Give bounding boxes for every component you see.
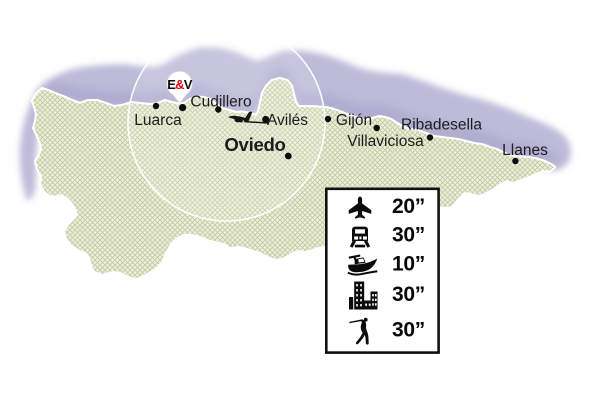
- svg-text:Ribadesella: Ribadesella: [401, 116, 482, 133]
- svg-text:30”: 30”: [392, 319, 425, 342]
- svg-text:Gijón: Gijón: [336, 112, 372, 129]
- svg-text:Oviedo: Oviedo: [224, 134, 285, 155]
- svg-text:Luarca: Luarca: [134, 112, 182, 129]
- svg-text:Villaviciosa: Villaviciosa: [347, 133, 424, 150]
- svg-text:20”: 20”: [392, 195, 425, 218]
- svg-text:Avilés: Avilés: [267, 112, 308, 129]
- svg-text:E&V: E&V: [167, 77, 192, 92]
- svg-text:10”: 10”: [392, 253, 425, 276]
- svg-text:Llanes: Llanes: [502, 142, 548, 159]
- svg-text:30”: 30”: [392, 283, 425, 306]
- svg-text:30”: 30”: [392, 224, 425, 247]
- svg-text:Cudillero: Cudillero: [190, 94, 251, 111]
